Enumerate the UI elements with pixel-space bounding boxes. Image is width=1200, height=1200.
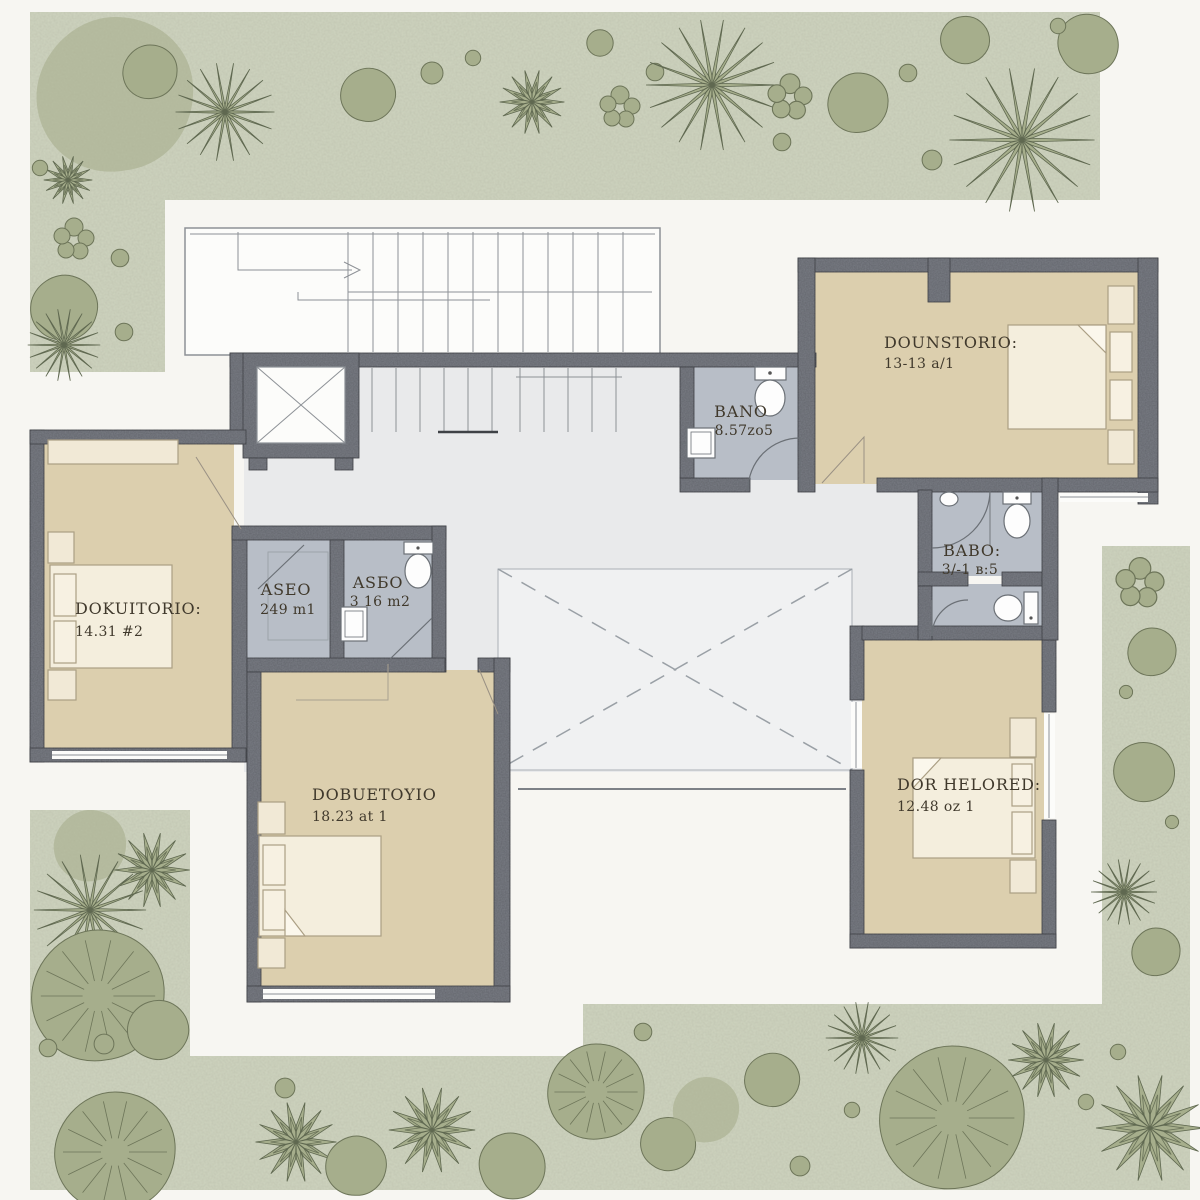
room-aseo-1 [245,540,332,660]
shrub-icon [32,160,47,175]
shrub-icon [634,1023,652,1041]
room-name: DOUNSTORIO: [884,333,1018,352]
label-aseo-2: ASБO 3 16 m2 [350,573,411,610]
shrub-icon [1078,1094,1093,1109]
stair-hall-outline [185,228,660,355]
room-area: 18.23 at 1 [312,809,388,825]
room-name: BANO [714,402,768,421]
room-area: 13-13 a/1 [884,356,954,372]
label-bano-top: BANO 8.57zo5 [714,402,773,439]
shrub-icon [773,133,791,151]
bush-icon [1128,628,1176,676]
shrub-icon [111,249,129,267]
shrub-icon [275,1078,295,1098]
room-area: 8.57zo5 [715,423,774,439]
shrub-icon [790,1156,810,1176]
room-area: 3 16 m2 [350,594,411,610]
shrub-icon [1119,685,1132,698]
room-area: 12.48 oz 1 [897,799,975,815]
room-name: ASБO [352,573,404,592]
wardrobe [48,440,178,464]
shrub-icon [39,1039,57,1057]
floor-plan-page: DOUNSTORIO: 13-13 a/1 BANO 8.57zo5 DOKUI… [0,0,1200,1200]
shower-head-icon [940,492,958,506]
room-name: DOBUETOYIO [312,785,437,804]
label-bano-right: BABO: 3/-1 в:5 [942,541,1001,578]
room-name: BABO: [943,541,1001,560]
room-area: 3/-1 в:5 [942,562,998,578]
toilet-icon [1003,492,1031,538]
shrub-icon [922,150,942,170]
shrub-icon [844,1102,859,1117]
toilet-icon [994,592,1038,624]
shrub-icon [1110,1044,1125,1059]
shrub-icon [899,64,917,82]
bush-icon [1132,928,1180,976]
shrub-icon [421,62,443,84]
room-name: DOKUITORIO: [75,599,202,618]
room-area: 249 m1 [260,602,316,618]
bush-icon [123,45,177,99]
bush-icon [828,73,888,132]
floor-plan-drawing: DOUNSTORIO: 13-13 a/1 BANO 8.57zo5 DOKUI… [0,0,1200,1200]
shrub-icon [94,1034,114,1054]
room-name: DOR HELORED: [897,775,1041,794]
elevator [257,367,345,443]
room-dormitorio-bottom [259,670,496,990]
shrub-icon [115,323,133,341]
shrub-icon [1165,815,1178,828]
shrub-icon [587,30,613,56]
room-name: ASEO [260,580,312,599]
shrub-icon [1050,18,1065,33]
shrub-icon [465,50,480,65]
void-opening [498,569,852,789]
toilet-icon [404,542,433,588]
room-area: 14.31 #2 [75,624,143,640]
